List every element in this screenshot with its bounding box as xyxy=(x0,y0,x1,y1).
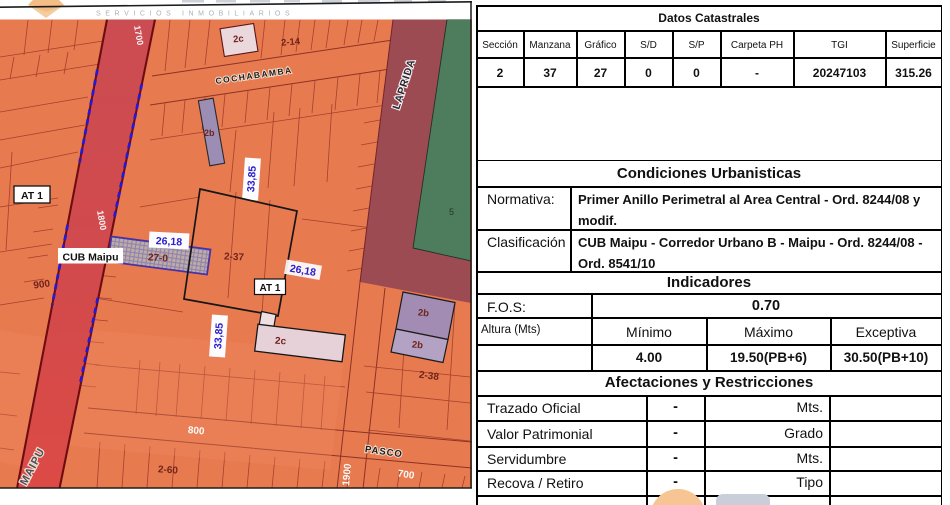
svg-text:2b: 2b xyxy=(204,128,215,138)
svg-text:5: 5 xyxy=(449,207,454,217)
svg-text:2b: 2b xyxy=(411,339,423,351)
svg-text:33,85: 33,85 xyxy=(212,322,226,349)
svg-text:AT 1: AT 1 xyxy=(21,190,43,202)
svg-text:2-37: 2-37 xyxy=(224,251,245,263)
svg-text:2-60: 2-60 xyxy=(158,464,179,476)
svg-text:27-0: 27-0 xyxy=(148,252,169,264)
svg-text:2b: 2b xyxy=(417,307,429,319)
svg-text:AT 1: AT 1 xyxy=(260,283,281,294)
svg-text:26,18: 26,18 xyxy=(156,235,183,248)
svg-text:2-14: 2-14 xyxy=(281,36,302,49)
svg-text:33,85: 33,85 xyxy=(245,165,259,192)
svg-text:800: 800 xyxy=(187,425,205,437)
svg-text:2c: 2c xyxy=(275,336,287,348)
svg-text:CUB Maipu: CUB Maipu xyxy=(63,252,119,264)
svg-text:2c: 2c xyxy=(233,33,244,45)
svg-text:1900: 1900 xyxy=(341,463,354,487)
svg-text:SERVICIOS INMOBILIARIOS: SERVICIOS INMOBILIARIOS xyxy=(96,11,294,18)
